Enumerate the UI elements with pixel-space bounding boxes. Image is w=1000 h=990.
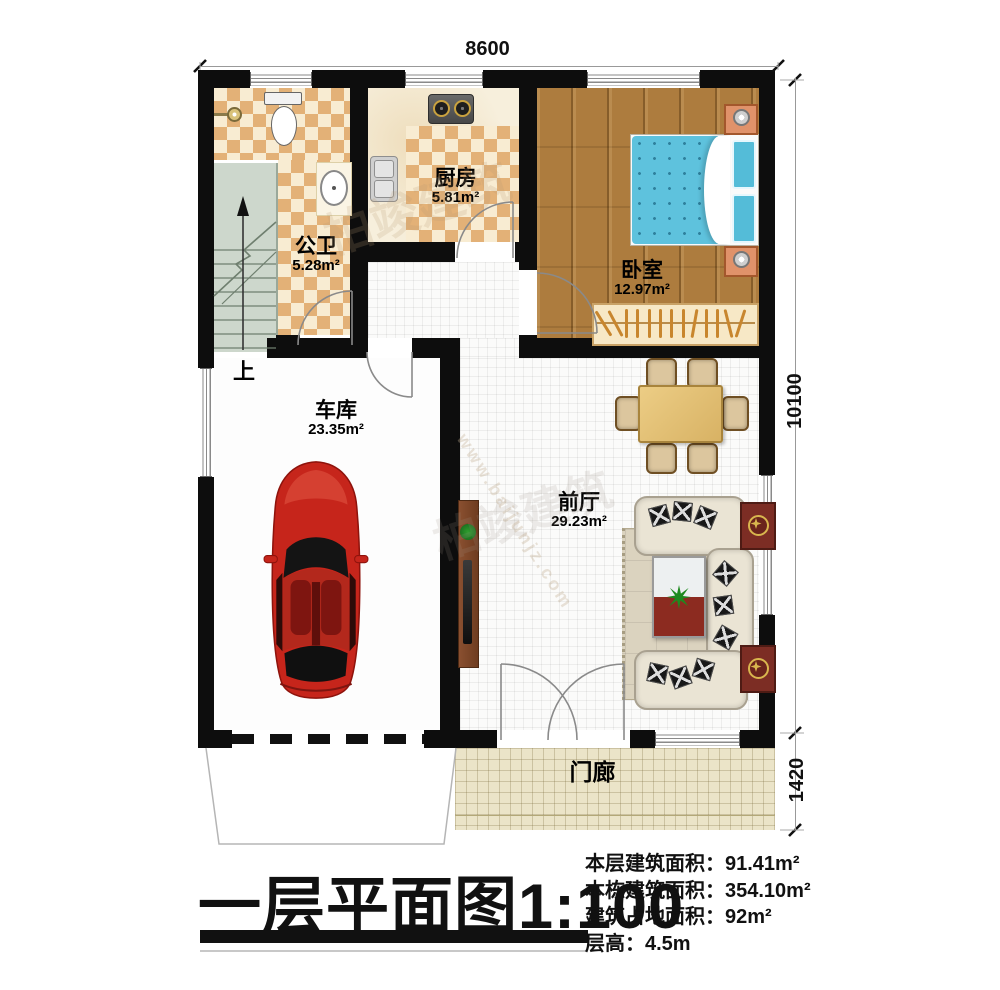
room-name: 厨房 bbox=[408, 168, 503, 190]
room-area: 5.81m² bbox=[408, 190, 503, 206]
room-area: 29.23m² bbox=[528, 514, 630, 530]
room-label-garage: 车库 23.35m² bbox=[288, 400, 384, 438]
info-floor-area: 本层建筑面积：91.41m² bbox=[585, 851, 811, 878]
info-total-area: 本栋建筑面积：354.10m² bbox=[585, 878, 811, 905]
dimension-right-main: 10100 bbox=[784, 361, 806, 441]
room-name: 车库 bbox=[288, 400, 384, 422]
room-label-hall: 前厅 29.23m² bbox=[528, 492, 630, 530]
plan-linework bbox=[0, 0, 1000, 990]
room-label-bedroom: 卧室 12.97m² bbox=[588, 260, 696, 298]
dimension-line-top bbox=[200, 66, 778, 67]
room-label-bathroom: 公卫 5.28m² bbox=[270, 236, 362, 274]
stairs-up-label: 上 bbox=[228, 354, 260, 386]
building-info: 本层建筑面积：91.41m² 本栋建筑面积：354.10m² 建筑占地面积：92… bbox=[585, 851, 811, 957]
title-underline-bar bbox=[200, 930, 588, 943]
room-area: 12.97m² bbox=[588, 282, 696, 298]
room-name: 门廊 bbox=[540, 760, 645, 784]
driveway-outline bbox=[206, 748, 456, 844]
room-area: 23.35m² bbox=[288, 422, 384, 438]
room-label-kitchen: 厨房 5.81m² bbox=[408, 168, 503, 206]
stairs-steps bbox=[214, 222, 276, 348]
room-name: 前厅 bbox=[528, 492, 630, 514]
dimension-right-porch: 1420 bbox=[786, 742, 806, 818]
door-arcs bbox=[298, 202, 624, 740]
title-underline-thin bbox=[200, 950, 588, 952]
floor-plan-page: 公卫 5.28m² 厨房 5.81m² 卧室 12.97m² 车库 23.35m… bbox=[0, 0, 1000, 990]
room-area: 5.28m² bbox=[270, 258, 362, 274]
info-floor-height: 层高：4.5m bbox=[585, 931, 811, 958]
dimension-top: 8600 bbox=[440, 38, 535, 61]
room-name: 公卫 bbox=[270, 236, 362, 258]
info-footprint-area: 建筑占地面积：92m² bbox=[585, 904, 811, 931]
room-name: 卧室 bbox=[588, 260, 696, 282]
room-label-porch: 门廊 bbox=[540, 760, 645, 784]
